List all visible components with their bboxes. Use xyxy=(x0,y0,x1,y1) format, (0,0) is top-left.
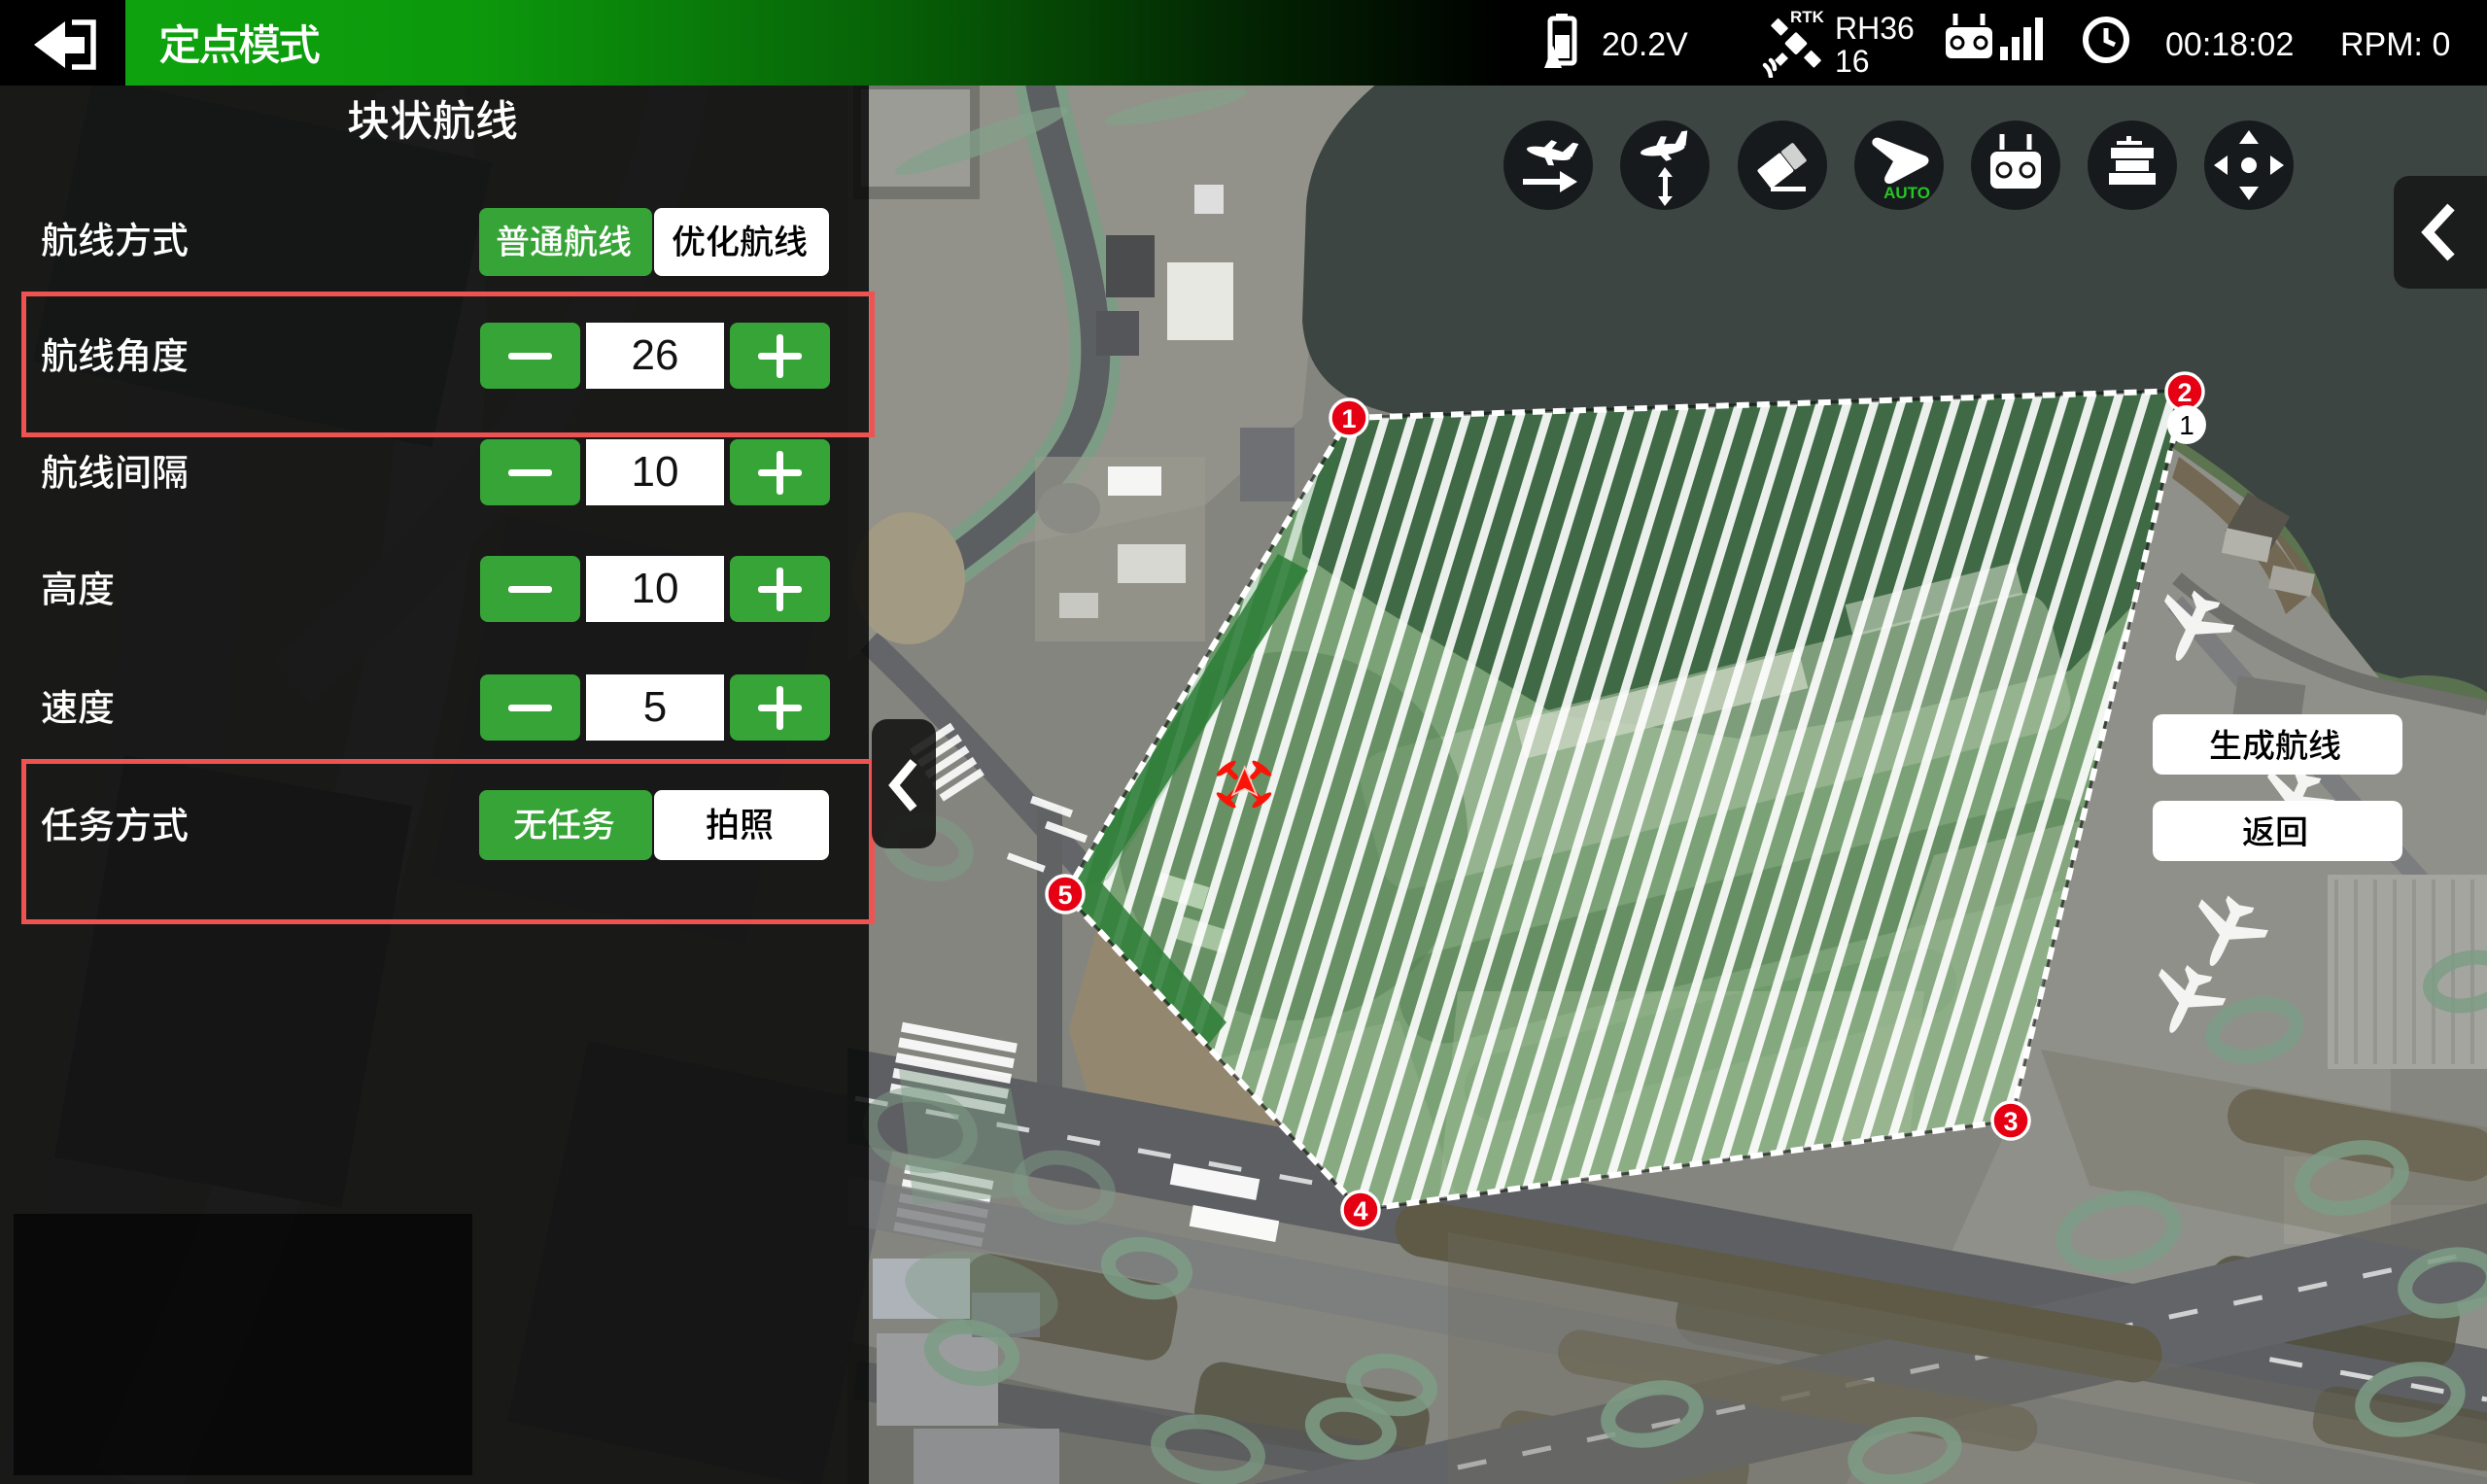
svg-text:1: 1 xyxy=(2179,410,2194,440)
svg-text:RTK: RTK xyxy=(1790,8,1825,26)
svg-text:3: 3 xyxy=(2003,1107,2018,1136)
svg-text:1: 1 xyxy=(1341,404,1356,433)
svg-text:2: 2 xyxy=(2177,378,2192,407)
svg-text:AUTO: AUTO xyxy=(1883,184,1930,202)
svg-text:4: 4 xyxy=(1353,1196,1367,1225)
svg-text:5: 5 xyxy=(1057,880,1072,910)
